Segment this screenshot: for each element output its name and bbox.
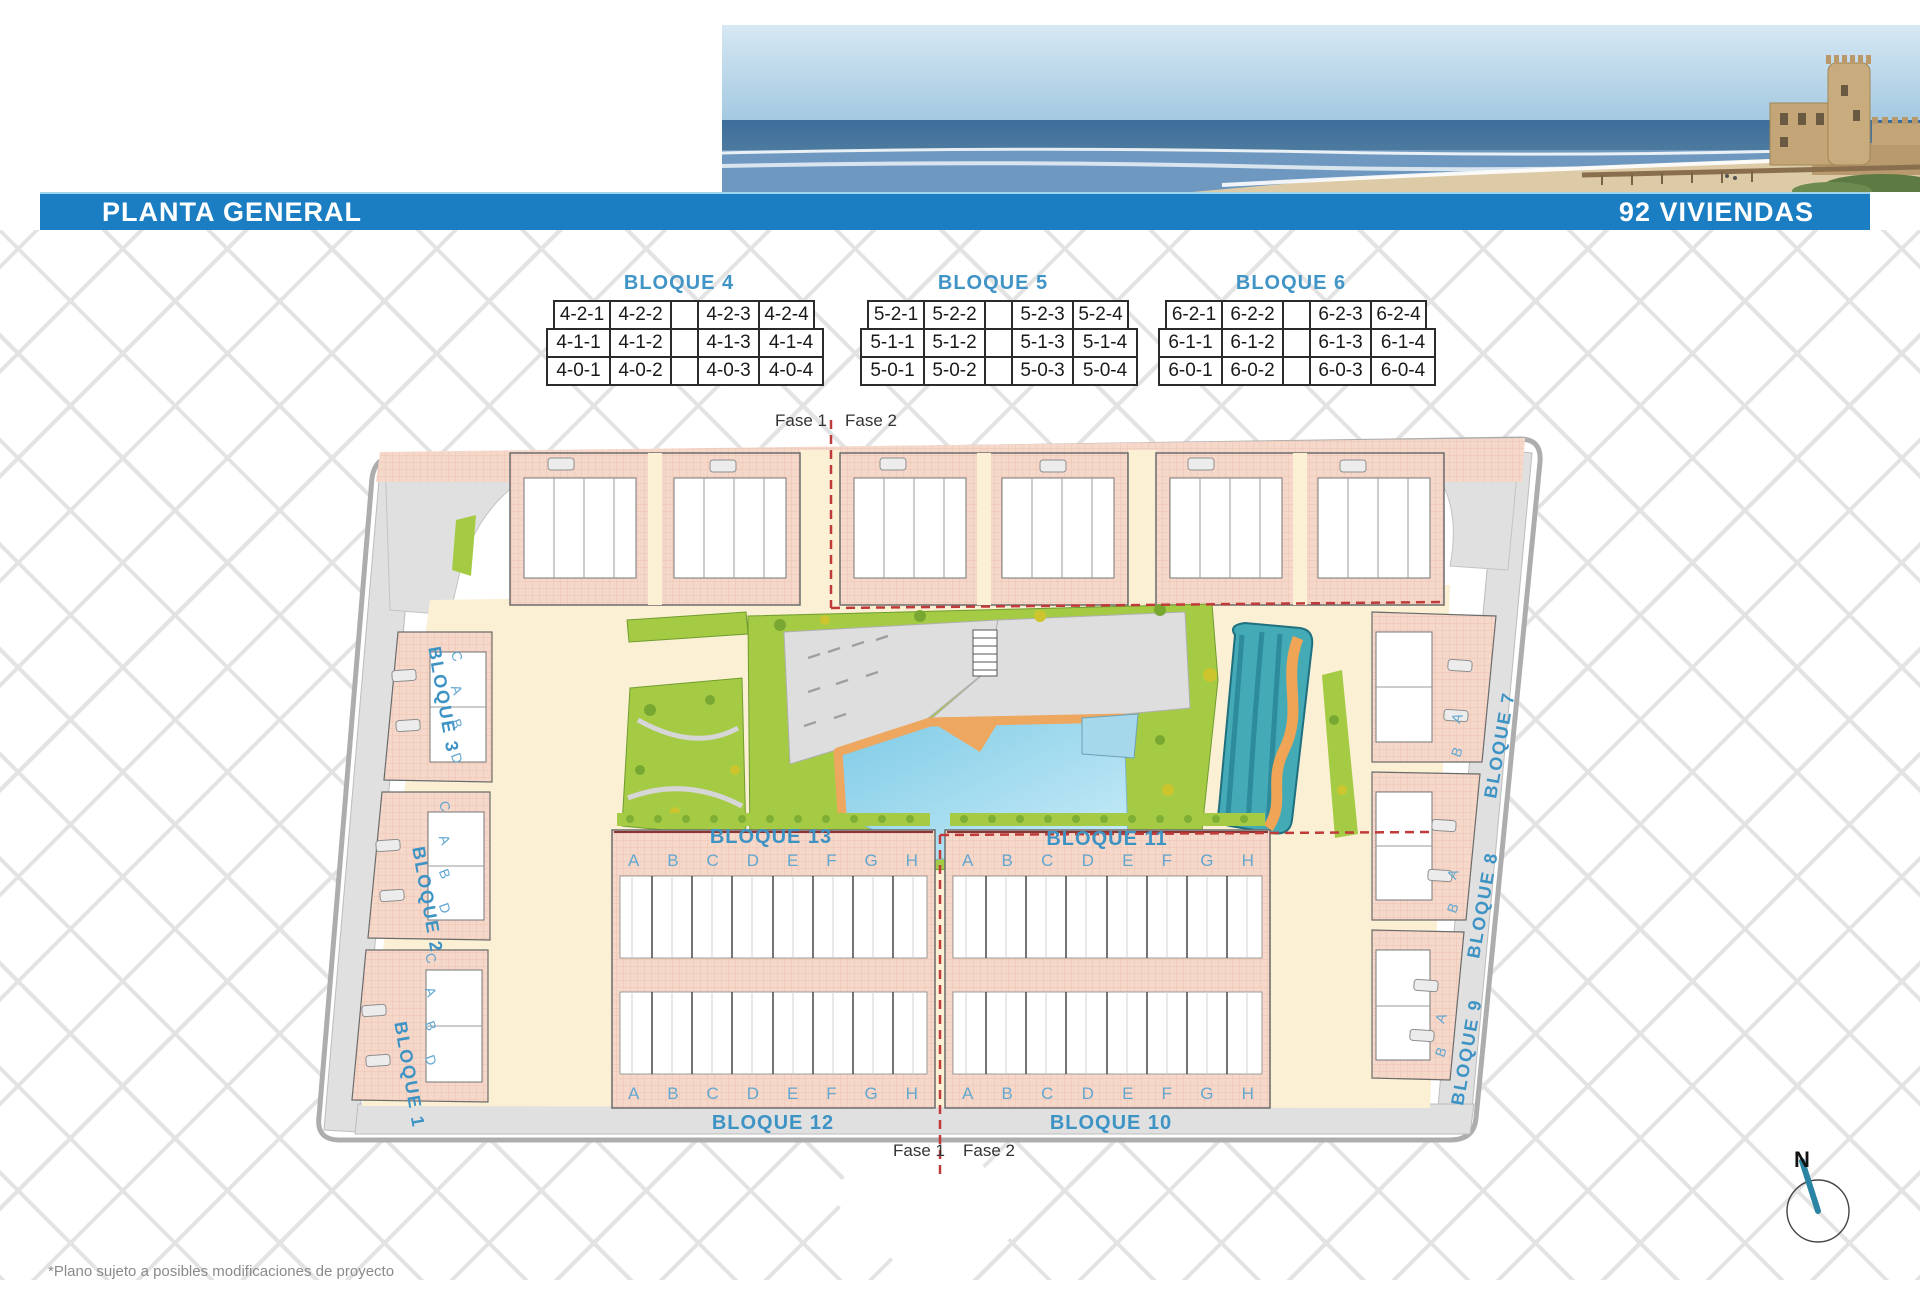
unit-table-row: 6-0-16-0-26-0-36-0-4 [1158, 356, 1434, 386]
unit-cell-6-0-3: 6-0-3 [1309, 356, 1372, 386]
building-bloque-5 [840, 453, 1128, 605]
letters-bloque-1: CABD [426, 950, 436, 1068]
unit-cell-5-1-2: 5-1-2 [923, 328, 986, 358]
unit-cell-4-1-3: 4-1-3 [697, 328, 760, 358]
stair-gap-cell [670, 328, 699, 358]
letter-row-bloque-13: ABCDEFGH [628, 851, 918, 871]
unit-cell-4-1-4: 4-1-4 [758, 328, 824, 358]
fase-1-label: Fase 1 [775, 411, 827, 431]
unit-cell-6-1-3: 6-1-3 [1309, 328, 1372, 358]
unit-letter-D: D [747, 851, 759, 871]
unit-cell-4-2-2: 4-2-2 [609, 300, 672, 330]
unit-letter-G: G [1200, 851, 1213, 871]
phase-labels-top: Fase 1 Fase 2 [775, 411, 897, 431]
unit-table-title: BLOQUE 4 [546, 272, 812, 295]
site-plan-drawing [280, 420, 1640, 1210]
stair-gap-cell [1282, 356, 1311, 386]
unit-cell-6-0-1: 6-0-1 [1158, 356, 1223, 386]
unit-letter-C: C [707, 1084, 719, 1104]
letters-bloque-3: CABD [452, 648, 462, 766]
unit-table-row: 5-2-15-2-25-2-35-2-4 [867, 300, 1136, 330]
unit-cell-5-1-1: 5-1-1 [860, 328, 925, 358]
unit-letter-E: E [1122, 1084, 1133, 1104]
block-gap [800, 450, 840, 608]
tower-main-building [1770, 103, 1834, 165]
unit-table-row: 5-1-15-1-25-1-35-1-4 [860, 328, 1136, 358]
unit-cell-6-2-1: 6-2-1 [1165, 300, 1223, 330]
unit-cell-4-2-3: 4-2-3 [697, 300, 760, 330]
unit-letter-B: B [1002, 1084, 1013, 1104]
unit-cell-6-0-2: 6-0-2 [1221, 356, 1284, 386]
unit-table-bloque-6: BLOQUE 66-2-16-2-26-2-36-2-46-1-16-1-26-… [1158, 300, 1434, 386]
stair-gap-cell [670, 300, 699, 330]
unit-letter-C: C [1041, 851, 1053, 871]
unit-letter-B: B [667, 1084, 678, 1104]
unit-letter-E: E [1122, 851, 1133, 871]
label-bloque-11: BLOQUE 11 [1046, 828, 1167, 851]
unit-letter-H: H [1242, 851, 1254, 871]
site-plan: Fase 1 Fase 2 Fase 1 Fase 2 BLOQUE 13ABC… [280, 420, 1640, 1210]
block-gap [1128, 450, 1156, 608]
unit-letter-F: F [1162, 1084, 1172, 1104]
unit-table-row: 4-2-14-2-24-2-34-2-4 [553, 300, 822, 330]
unit-letter-D: D [1082, 851, 1094, 871]
unit-cell-4-0-4: 4-0-4 [758, 356, 824, 386]
footnote: *Plano sujeto a posibles modificaciones … [48, 1263, 394, 1280]
unit-table-row: 4-1-14-1-24-1-34-1-4 [546, 328, 822, 358]
fase-1-label: Fase 1 [893, 1141, 945, 1161]
pergola-stairs [973, 630, 997, 676]
unit-cell-4-0-3: 4-0-3 [697, 356, 760, 386]
stair-gap-cell [984, 328, 1013, 358]
unit-letter-F: F [1162, 851, 1172, 871]
fase-2-label: Fase 2 [845, 411, 897, 431]
unit-letter-H: H [1242, 1084, 1254, 1104]
label-bloque-10: BLOQUE 10 [1050, 1112, 1172, 1135]
phase-labels-bottom: Fase 1 Fase 2 [893, 1141, 1015, 1161]
unit-cell-4-1-1: 4-1-1 [546, 328, 611, 358]
unit-letter-E: E [787, 851, 798, 871]
unit-table-row: 6-1-16-1-26-1-36-1-4 [1158, 328, 1434, 358]
unit-letter-A: A [628, 1084, 639, 1104]
letter-row-bloque-10: ABCDEFGH [962, 1084, 1254, 1104]
unit-letter-H: H [906, 851, 918, 871]
unit-table-title: BLOQUE 5 [860, 272, 1126, 295]
viviendas-count: 92 VIVIENDAS [1619, 197, 1870, 228]
stair-gap-cell [670, 356, 699, 386]
unit-cell-6-2-2: 6-2-2 [1221, 300, 1284, 330]
compass-north-label: N [1794, 1147, 1810, 1173]
unit-letter-E: E [787, 1084, 798, 1104]
label-bloque-12: BLOQUE 12 [712, 1112, 834, 1135]
unit-table-row: 5-0-15-0-25-0-35-0-4 [860, 356, 1136, 386]
unit-letter-B: B [667, 851, 678, 871]
letters-bloque-2: CABD [440, 798, 450, 916]
letters-bloque-9: AB [1436, 1010, 1445, 1060]
unit-letter-F: F [826, 1084, 836, 1104]
beach-photo [722, 25, 1920, 192]
unit-cell-6-1-1: 6-1-1 [1158, 328, 1223, 358]
unit-cell-4-1-2: 4-1-2 [609, 328, 672, 358]
unit-cell-4-0-1: 4-0-1 [546, 356, 611, 386]
unit-cell-6-2-4: 6-2-4 [1370, 300, 1427, 330]
unit-cell-6-1-4: 6-1-4 [1370, 328, 1436, 358]
unit-cell-5-2-4: 5-2-4 [1072, 300, 1129, 330]
letters-bloque-8: AB [1448, 866, 1457, 916]
unit-letter-F: F [826, 851, 836, 871]
unit-cell-4-2-1: 4-2-1 [553, 300, 611, 330]
unit-table-row: 6-2-16-2-26-2-36-2-4 [1165, 300, 1434, 330]
stair-gap-cell [1282, 328, 1311, 358]
unit-cell-6-2-3: 6-2-3 [1309, 300, 1372, 330]
unit-letter-G: G [1200, 1084, 1213, 1104]
unit-letter-A: A [628, 851, 639, 871]
fase-2-label: Fase 2 [963, 1141, 1015, 1161]
unit-cell-5-0-2: 5-0-2 [923, 356, 986, 386]
unit-letter-C: C [707, 851, 719, 871]
unit-cell-4-0-2: 4-0-2 [609, 356, 672, 386]
stair-gap-cell [984, 356, 1013, 386]
compass: N [1756, 1145, 1886, 1260]
unit-letter-D: D [1082, 1084, 1094, 1104]
unit-cell-5-2-2: 5-2-2 [923, 300, 986, 330]
unit-cell-6-0-4: 6-0-4 [1370, 356, 1436, 386]
unit-cell-6-1-2: 6-1-2 [1221, 328, 1284, 358]
unit-letter-D: D [747, 1084, 759, 1104]
side-wall [1872, 123, 1920, 145]
sky [722, 25, 1920, 135]
unit-cell-5-2-1: 5-2-1 [867, 300, 925, 330]
kids-pool [1082, 714, 1138, 758]
unit-cell-5-0-1: 5-0-1 [860, 356, 925, 386]
unit-letter-A: A [962, 1084, 973, 1104]
beach-photo-art [722, 25, 1920, 192]
title-banner: PLANTA GENERAL 92 VIVIENDAS [40, 192, 1870, 230]
unit-cell-4-2-4: 4-2-4 [758, 300, 815, 330]
unit-table-bloque-5: BLOQUE 55-2-15-2-25-2-35-2-45-1-15-1-25-… [860, 300, 1136, 386]
label-bloque-13: BLOQUE 13 [710, 826, 832, 849]
round-tower [1828, 63, 1870, 165]
unit-cell-5-0-4: 5-0-4 [1072, 356, 1138, 386]
unit-table-bloque-4: BLOQUE 44-2-14-2-24-2-34-2-44-1-14-1-24-… [546, 300, 822, 386]
unit-letter-A: A [962, 851, 973, 871]
unit-letter-G: G [865, 1084, 878, 1104]
letters-bloque-7: AB [1452, 710, 1461, 760]
unit-letter-G: G [865, 851, 878, 871]
building-bloque-6 [1156, 453, 1444, 605]
unit-cell-5-1-3: 5-1-3 [1011, 328, 1074, 358]
stair-gap-cell [984, 300, 1013, 330]
unit-cell-5-2-3: 5-2-3 [1011, 300, 1074, 330]
unit-table-title: BLOQUE 6 [1158, 272, 1424, 295]
compass-rose [1756, 1145, 1886, 1260]
unit-letter-H: H [906, 1084, 918, 1104]
building-bloque-4 [510, 453, 800, 605]
unit-table-row: 4-0-14-0-24-0-34-0-4 [546, 356, 822, 386]
top-building-blocks [510, 453, 1444, 605]
stair-gap-cell [1282, 300, 1311, 330]
unit-letter-B: B [1002, 851, 1013, 871]
unit-cell-5-0-3: 5-0-3 [1011, 356, 1074, 386]
letter-row-bloque-11: ABCDEFGH [962, 851, 1254, 871]
unit-cell-5-1-4: 5-1-4 [1072, 328, 1138, 358]
page-title: PLANTA GENERAL [40, 197, 362, 228]
unit-letter-C: C [1041, 1084, 1053, 1104]
letter-row-bloque-12: ABCDEFGH [628, 1084, 918, 1104]
